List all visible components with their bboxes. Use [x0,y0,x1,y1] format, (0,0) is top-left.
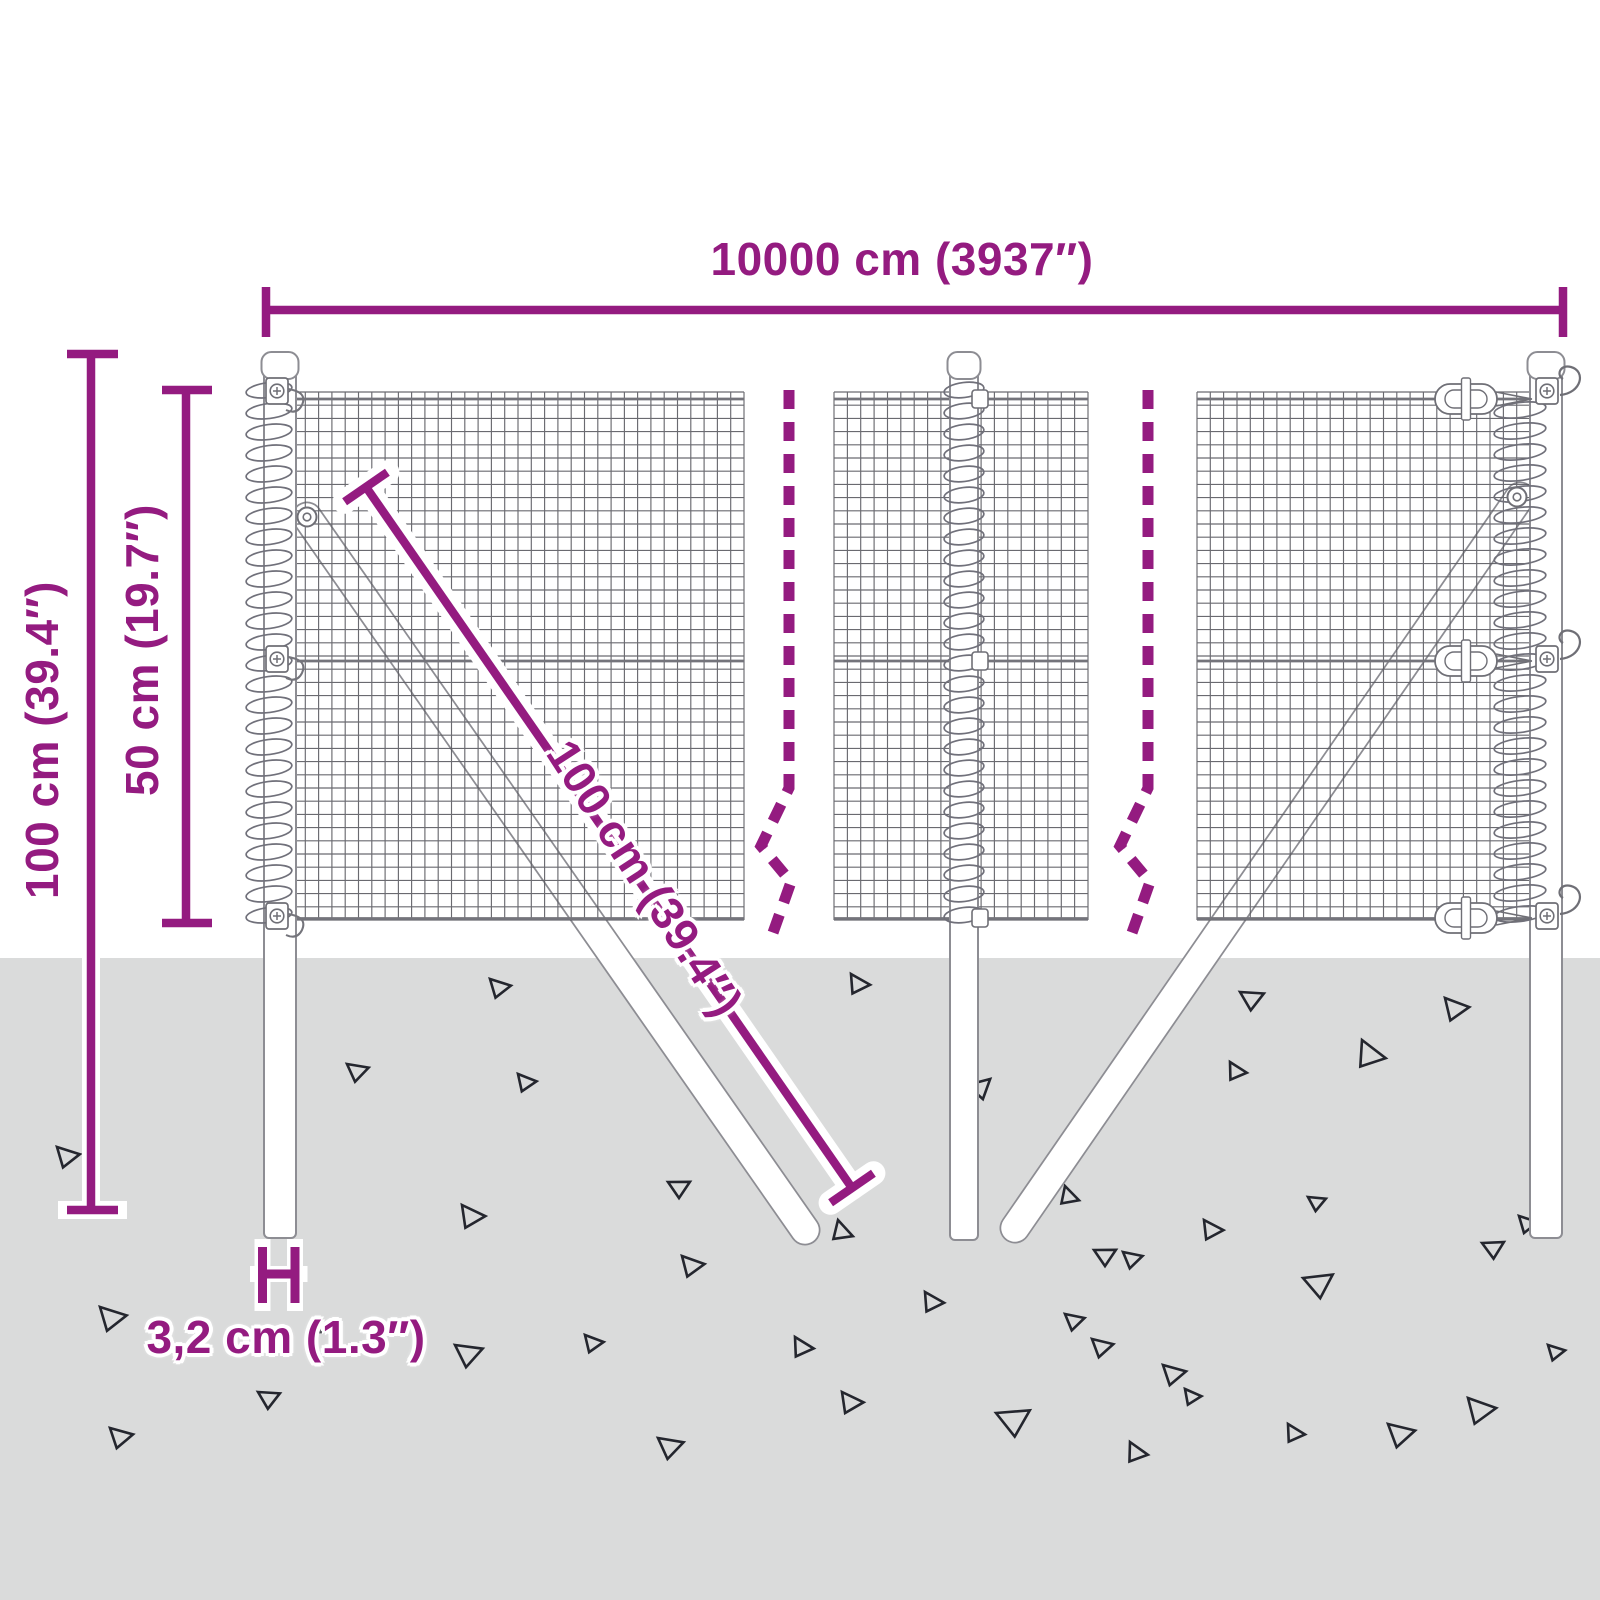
post-cap [948,352,981,379]
turnbuckle-pin [1462,640,1471,682]
post-cap [262,352,299,379]
break-line [1120,390,1150,944]
break-line [761,390,791,944]
dim-label-post-width: 3,2 cm (1.3″) [146,1310,425,1364]
brace-pivot [298,508,317,527]
dim-label-total-width: 10000 cm (3937″) [711,232,1094,286]
dim-label-mesh-height: 50 cm (19.7″) [115,504,169,796]
brace-pivot [1508,488,1527,507]
dim-label-total-height: 100 cm (39.4″) [15,581,69,899]
turnbuckle-pin [1462,897,1471,939]
post-clamp [972,652,988,670]
post-clamp [972,909,988,927]
post-clamp [972,390,988,408]
turnbuckle-pin [1462,378,1471,420]
diagram-stage: 10000 cm (3937″) 100 cm (39.4″) 50 cm (1… [0,0,1600,1600]
